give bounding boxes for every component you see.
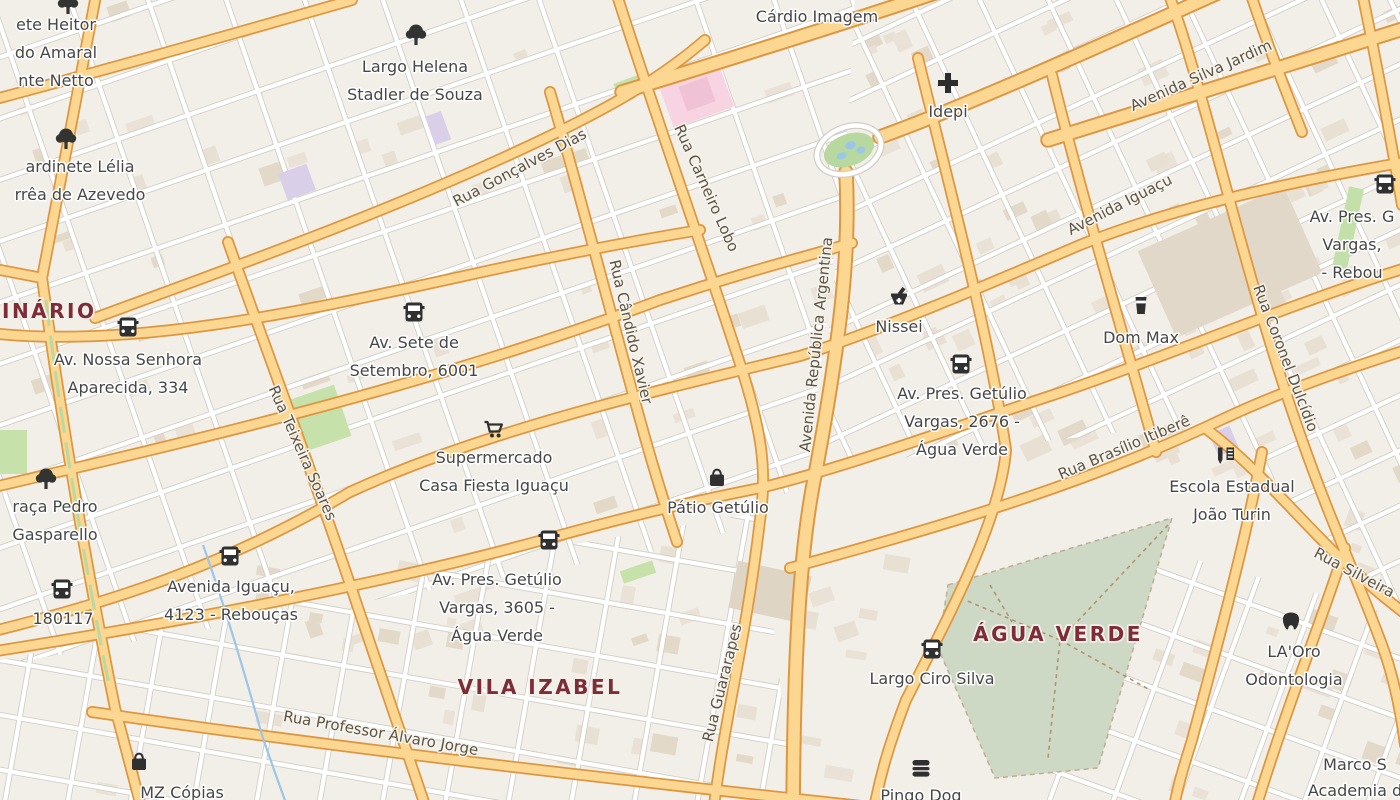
poi-label-jardinete-lelia[interactable]: ardinete Lélia xyxy=(25,157,134,176)
bus-icon[interactable] xyxy=(539,531,560,550)
poi-label-mz-copias[interactable]: MZ Cópias xyxy=(140,783,224,800)
poi-label-largo-ciro-silva[interactable]: Largo Ciro Silva xyxy=(869,669,994,688)
poi-label-jardinete-heitor[interactable]: do Amaral xyxy=(15,43,97,62)
poi-label-nissei[interactable]: Nissei xyxy=(875,317,922,336)
poi-label-av-vargas-reboucas[interactable]: - Rebou xyxy=(1321,263,1382,282)
poi-label-stop-180117[interactable]: 180117 xyxy=(32,609,93,628)
poi-label-largo-helena[interactable]: Largo Helena xyxy=(362,57,468,76)
poi-label-marco-academia[interactable]: Academia d xyxy=(1308,781,1400,800)
poi-label-laoro-odontologia[interactable]: LA'Oro xyxy=(1267,642,1320,661)
poi-label-av-iguacu-4123[interactable]: Avenida Iguaçu, xyxy=(167,577,295,596)
district-label: ÁGUA VERDE xyxy=(973,622,1143,646)
bus-icon[interactable] xyxy=(951,355,972,374)
burger-icon[interactable] xyxy=(913,760,930,777)
poi-label-av-nossa-senhora-334[interactable]: Av. Nossa Senhora xyxy=(54,350,202,369)
poi-label-av-vargas-3605[interactable]: Água Verde xyxy=(451,626,543,645)
poi-label-av-iguacu-4123[interactable]: 4123 - Rebouças xyxy=(164,605,298,624)
bus-icon[interactable] xyxy=(404,303,425,322)
poi-label-supermercado-casa-fiesta[interactable]: Supermercado xyxy=(436,448,553,467)
bus-icon[interactable] xyxy=(922,640,943,659)
poi-label-av-vargas-2676[interactable]: Av. Pres. Getúlio xyxy=(897,384,1027,403)
poi-label-laoro-odontologia[interactable]: Odontologia xyxy=(1245,670,1342,689)
poi-label-av-vargas-2676[interactable]: Água Verde xyxy=(916,440,1008,459)
poi-label-escola-joao-turin[interactable]: João Turin xyxy=(1192,505,1271,524)
poi-label-patio-getulio[interactable]: Pátio Getúlio xyxy=(667,498,769,517)
poi-label-escola-joao-turin[interactable]: Escola Estadual xyxy=(1169,477,1294,496)
poi-label-av-vargas-2676[interactable]: Vargas, 2676 - xyxy=(904,412,1020,431)
poi-label-supermercado-casa-fiesta[interactable]: Casa Fiesta Iguaçu xyxy=(419,476,569,495)
poi-label-praca-pedro[interactable]: raça Pedro xyxy=(12,497,97,516)
poi-label-av-vargas-reboucas[interactable]: Av. Pres. G xyxy=(1310,207,1395,226)
minor-roads-layer xyxy=(0,0,1400,800)
poi-label-av-sete-6001[interactable]: Setembro, 6001 xyxy=(350,361,479,380)
poi-label-jardinete-heitor[interactable]: nte Netto xyxy=(18,71,94,90)
map-canvas[interactable]: Rua Gonçalves DiasRua Carneiro LoboRua C… xyxy=(0,0,1400,800)
poi-label-av-nossa-senhora-334[interactable]: Aparecida, 334 xyxy=(68,378,189,397)
district-label: VILA IZABEL xyxy=(458,675,623,699)
bus-icon[interactable] xyxy=(1375,175,1396,194)
poi-label-jardinete-heitor[interactable]: ete Heitor xyxy=(16,15,96,34)
map-svg[interactable]: Rua Gonçalves DiasRua Carneiro LoboRua C… xyxy=(0,0,1400,800)
poi-label-jardinete-lelia[interactable]: rrêa de Azevedo xyxy=(15,185,146,204)
cup-icon[interactable] xyxy=(1136,297,1147,314)
poi-label-av-vargas-3605[interactable]: Av. Pres. Getúlio xyxy=(432,570,562,589)
poi-label-marco-academia[interactable]: Marco S xyxy=(1323,755,1387,774)
poi-label-pingo-dog[interactable]: Pingo Dog xyxy=(880,786,961,800)
poi-label-av-vargas-reboucas[interactable]: Vargas, xyxy=(1322,235,1381,254)
poi-label-largo-helena[interactable]: Stadler de Souza xyxy=(347,85,483,104)
district-label: INÁRIO xyxy=(2,299,97,323)
bus-icon[interactable] xyxy=(220,547,241,566)
poi-label-dom-max[interactable]: Dom Max xyxy=(1103,328,1179,347)
poi-label-av-sete-6001[interactable]: Av. Sete de xyxy=(369,333,459,352)
bus-icon[interactable] xyxy=(52,580,73,599)
bag-icon[interactable] xyxy=(710,470,724,486)
poi-label-idepi[interactable]: Idepi xyxy=(928,102,967,121)
poi-label-cardio-imagem[interactable]: Cárdio Imagem xyxy=(756,7,878,26)
poi-label-praca-pedro[interactable]: Gasparello xyxy=(12,525,97,544)
bus-icon[interactable] xyxy=(118,318,139,337)
tooth-icon[interactable] xyxy=(1283,613,1299,630)
poi-label-av-vargas-3605[interactable]: Vargas, 3605 - xyxy=(439,598,555,617)
